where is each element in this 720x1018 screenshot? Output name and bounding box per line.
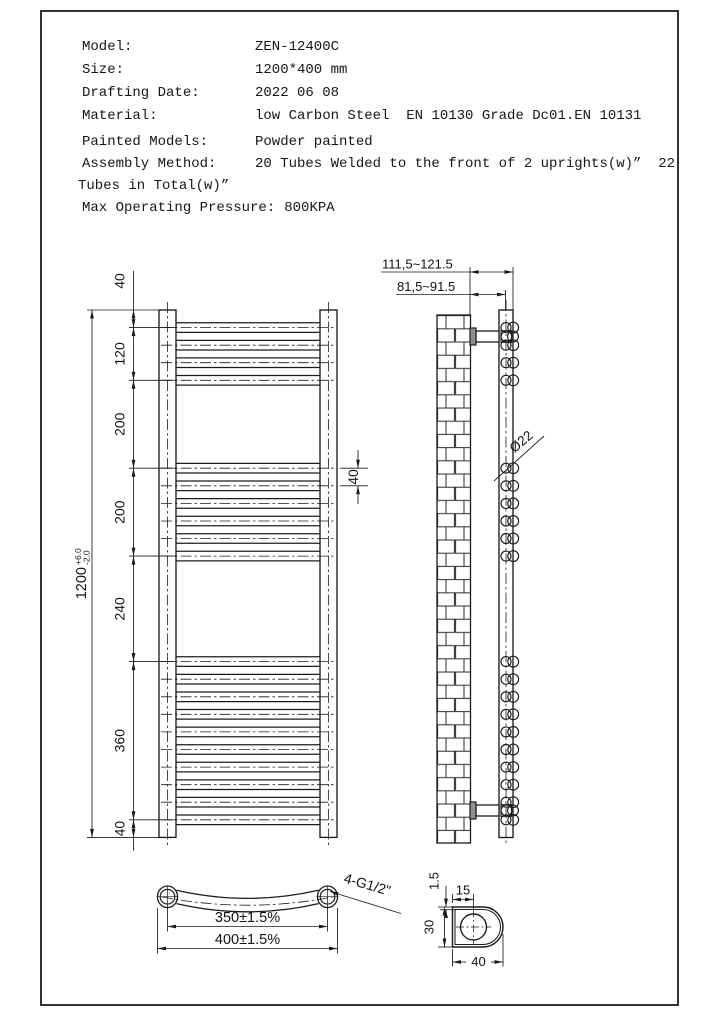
spec-row-assembly-cont: Tubes in Total(w)” — [78, 178, 229, 194]
spec-value: low Carbon Steel EN 10130 Grade Dc01.EN … — [255, 108, 641, 124]
technical-drawing: 1200+6.0-2.0401202002002403604040 111,5~… — [0, 0, 720, 1018]
spec-row-model: Model:ZEN-12400C — [82, 39, 339, 55]
svg-text:40: 40 — [112, 273, 128, 289]
spec-value: ZEN-12400C — [255, 39, 339, 55]
svg-text:15: 15 — [456, 883, 470, 898]
svg-text:4-G1/2": 4-G1/2" — [342, 870, 392, 899]
svg-text:81,5~91.5: 81,5~91.5 — [397, 279, 455, 294]
spec-row-date: Drafting Date:2022 06 08 — [82, 85, 339, 101]
svg-text:40: 40 — [112, 821, 128, 837]
side-view: 111,5~121.581,5~91.5Ø22 — [381, 257, 544, 847]
drawing-sheet: 1200+6.0-2.0401202002002403604040 111,5~… — [0, 0, 720, 1018]
plan-view: 350±1.5%400±1.5%4-G1/2" — [157, 870, 402, 954]
spec-label: Drafting Date: — [82, 85, 255, 101]
spec-value: 2022 06 08 — [255, 85, 339, 101]
wall-bracket-plate — [470, 802, 476, 819]
spec-row-size: Size:1200*400 mm — [82, 62, 347, 78]
svg-text:240: 240 — [112, 597, 128, 621]
front-view: 1200+6.0-2.0401202002002403604040 — [73, 271, 368, 851]
wall-brick-hatch — [437, 315, 471, 843]
spec-value: 20 Tubes Welded to the front of 2 uprigh… — [255, 156, 675, 172]
spec-value: 1200*400 mm — [255, 62, 347, 78]
spec-value: Powder painted — [255, 134, 373, 150]
svg-text:40: 40 — [471, 954, 485, 969]
spec-row-pressure: Max Operating Pressure:800KPA — [82, 200, 335, 216]
spec-label: Model: — [82, 39, 255, 55]
spec-row-material: Material:low Carbon Steel EN 10130 Grade… — [82, 108, 641, 124]
spec-row-painted: Painted Models:Powder painted — [82, 134, 373, 150]
svg-text:111,5~121.5: 111,5~121.5 — [382, 257, 453, 272]
spec-label: Assembly Method: — [82, 156, 255, 172]
svg-text:1.5: 1.5 — [427, 872, 442, 890]
wall-bracket-arm — [476, 805, 499, 816]
svg-text:400±1.5%: 400±1.5% — [215, 932, 280, 948]
spec-label: Size: — [82, 62, 255, 78]
spec-value: Tubes in Total(w)” — [78, 178, 229, 194]
wall-bracket-plate — [470, 328, 476, 345]
svg-text:200: 200 — [112, 500, 128, 524]
section-view: 151.53040 — [422, 872, 504, 969]
svg-text:200: 200 — [112, 412, 128, 436]
svg-text:-2.0: -2.0 — [82, 550, 92, 565]
spec-label: Material: — [82, 108, 255, 124]
spec-value: 800KPA — [284, 200, 334, 216]
svg-text:120: 120 — [112, 342, 128, 366]
svg-text:360: 360 — [112, 729, 128, 753]
overall-height-dim: 1200+6.0-2.0 — [73, 548, 92, 599]
svg-text:30: 30 — [422, 920, 437, 934]
svg-text:350±1.5%: 350±1.5% — [215, 910, 280, 926]
wall-bracket-arm — [476, 331, 499, 342]
spec-label: Painted Models: — [82, 134, 255, 150]
spec-label: Max Operating Pressure: — [82, 200, 275, 216]
spec-row-assembly: Assembly Method:20 Tubes Welded to the f… — [82, 156, 675, 172]
svg-text:40: 40 — [345, 469, 361, 485]
svg-text:1200: 1200 — [74, 567, 90, 599]
